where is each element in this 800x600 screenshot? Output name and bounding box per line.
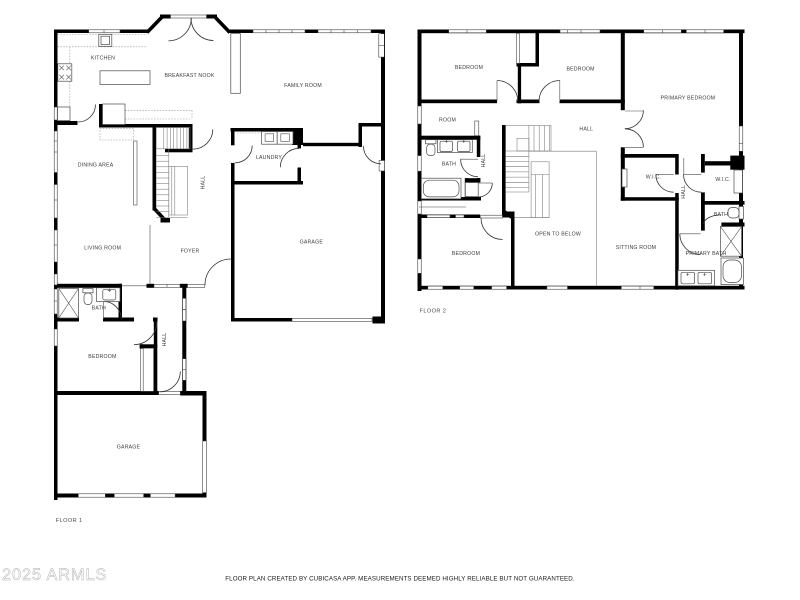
svg-text:GARAGE: GARAGE [117, 445, 141, 451]
svg-text:FLOOR 2: FLOOR 2 [420, 309, 447, 315]
svg-text:W.I.C.: W.I.C. [646, 174, 661, 180]
svg-text:BEDROOM: BEDROOM [455, 65, 483, 71]
svg-text:BATH: BATH [92, 305, 106, 311]
svg-text:GARAGE: GARAGE [300, 240, 324, 246]
svg-text:W.I.C.: W.I.C. [715, 177, 730, 183]
svg-text:BEDROOM: BEDROOM [88, 354, 116, 360]
svg-text:BREAKFAST NOOK: BREAKFAST NOOK [165, 73, 215, 79]
svg-text:DINING AREA: DINING AREA [78, 162, 114, 168]
svg-text:HALL: HALL [481, 154, 487, 168]
svg-text:BEDROOM: BEDROOM [452, 251, 480, 257]
svg-text:BATH: BATH [442, 161, 456, 167]
svg-text:SITTING ROOM: SITTING ROOM [616, 245, 656, 251]
svg-text:HALL: HALL [579, 127, 593, 133]
svg-text:BATH: BATH [714, 212, 728, 218]
svg-text:ROOM: ROOM [439, 118, 456, 124]
svg-text:LAUNDRY: LAUNDRY [256, 155, 282, 161]
svg-text:OPEN TO BELOW: OPEN TO BELOW [535, 231, 581, 237]
svg-text:FLOOR PLAN CREATED BY CUBICASA: FLOOR PLAN CREATED BY CUBICASA APP. MEAS… [225, 576, 575, 583]
svg-text:FLOOR 1: FLOOR 1 [56, 518, 83, 524]
svg-text:HALL: HALL [162, 333, 168, 347]
svg-text:FAMILY ROOM: FAMILY ROOM [284, 83, 322, 89]
svg-text:HALL: HALL [681, 185, 687, 199]
svg-text:PRIMARY BEDROOM: PRIMARY BEDROOM [661, 95, 716, 101]
svg-text:HALL: HALL [201, 176, 207, 190]
svg-text:BEDROOM: BEDROOM [566, 67, 594, 73]
svg-text:KITCHEN: KITCHEN [91, 55, 115, 61]
svg-text:PRIMARY BATH: PRIMARY BATH [686, 251, 727, 257]
svg-text:2025 ARMLS: 2025 ARMLS [2, 566, 107, 584]
svg-text:LIVING ROOM: LIVING ROOM [84, 245, 121, 251]
svg-text:FOYER: FOYER [181, 248, 200, 254]
